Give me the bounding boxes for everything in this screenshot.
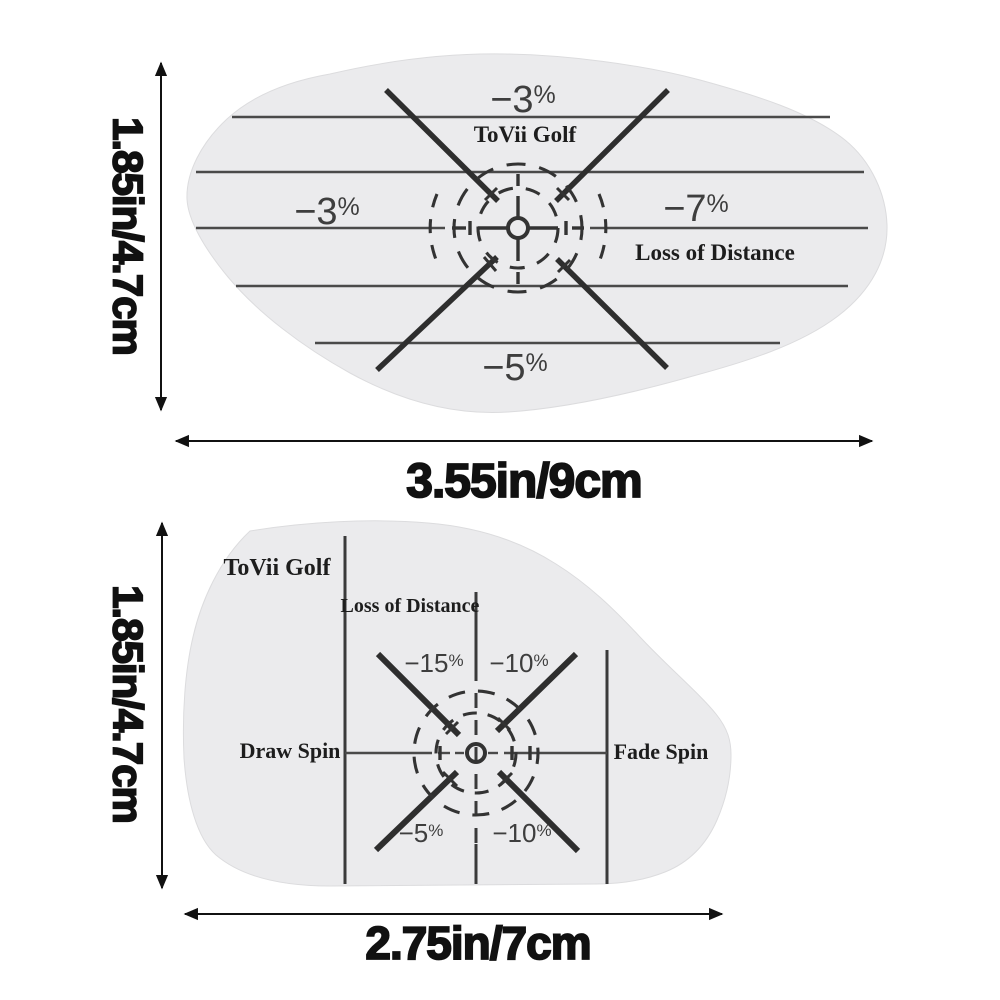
width-dimension-label: 3.55in/9cm <box>406 455 641 508</box>
diagram-canvas: −3% ToVii Golf −3% −7% Loss of Distance … <box>0 0 1000 1000</box>
loss-of-distance-caption: Loss of Distance <box>635 240 795 265</box>
width-dimension-label: 2.75in/7cm <box>365 917 590 969</box>
height-dimension-label: 1.85in/4.7cm <box>105 117 152 355</box>
draw-spin-label: Draw Spin <box>240 738 341 763</box>
driver-sticker: −3% ToVii Golf −3% −7% Loss of Distance … <box>187 54 887 413</box>
iron-sticker: ToVii Golf Loss of Distance −15% −10% Dr… <box>183 521 731 886</box>
brand-label: ToVii Golf <box>474 122 577 147</box>
fade-spin-label: Fade Spin <box>614 739 709 764</box>
loss-of-distance-caption: Loss of Distance <box>341 595 480 617</box>
height-dimension-label: 1.85in/4.7cm <box>105 585 152 823</box>
product-dimension-diagram: −3% ToVii Golf −3% −7% Loss of Distance … <box>0 0 1000 1000</box>
brand-label: ToVii Golf <box>224 555 332 581</box>
